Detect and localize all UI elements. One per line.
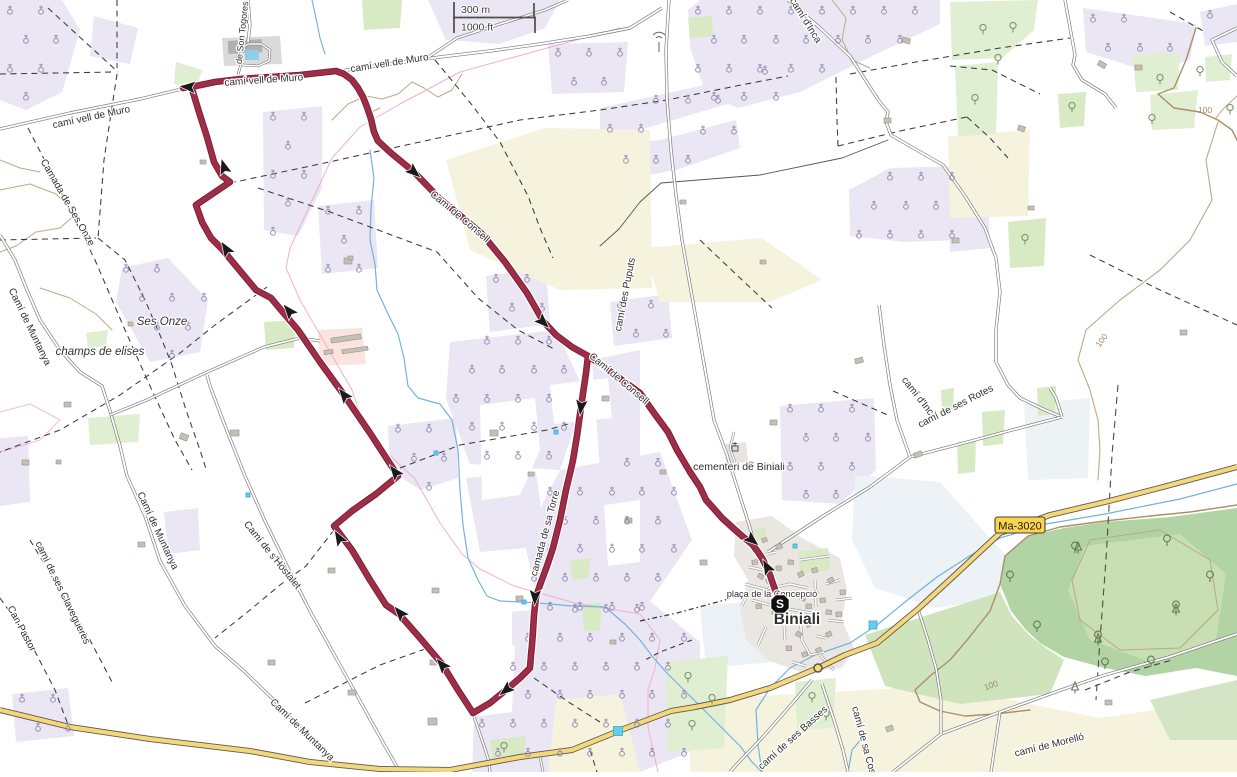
svg-text:Ma-3020: Ma-3020 xyxy=(998,521,1041,533)
svg-text:300 m: 300 m xyxy=(461,4,490,16)
svg-text:100: 100 xyxy=(1198,105,1212,115)
svg-text:champs de elises: champs de elises xyxy=(56,346,145,358)
svg-text:cementeri de Biniali: cementeri de Biniali xyxy=(693,461,785,473)
svg-text:plaça de la Concepció: plaça de la Concepció xyxy=(727,589,817,599)
svg-text:Ses Onze: Ses Onze xyxy=(137,316,188,328)
svg-text:1000 ft: 1000 ft xyxy=(461,22,493,34)
svg-text:S: S xyxy=(776,597,784,611)
